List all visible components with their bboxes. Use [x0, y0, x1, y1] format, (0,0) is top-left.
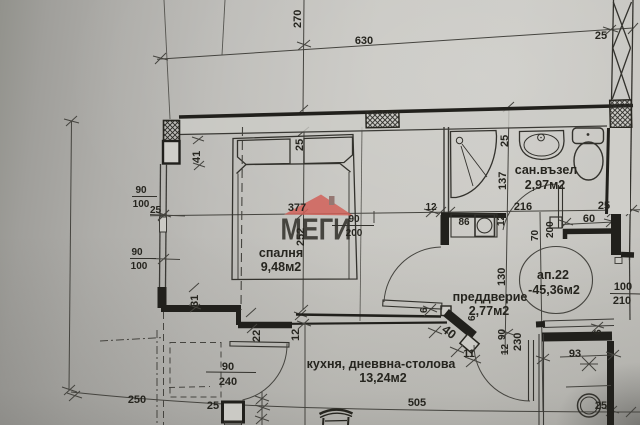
svg-text:ап.22: ап.22 [537, 268, 569, 282]
svg-text:кухня, дневвна-столова: кухня, дневвна-столова [307, 357, 457, 371]
svg-text:6: 6 [593, 329, 604, 335]
svg-text:2,97м2: 2,97м2 [525, 178, 566, 192]
svg-text:25: 25 [595, 400, 607, 412]
svg-text:25: 25 [598, 200, 610, 212]
svg-text:90: 90 [131, 247, 143, 258]
svg-text:25: 25 [294, 139, 306, 151]
svg-text:90: 90 [497, 328, 508, 340]
svg-text:240: 240 [219, 376, 237, 388]
svg-text:100: 100 [614, 281, 632, 293]
svg-text:505: 505 [408, 397, 426, 409]
svg-text:25: 25 [207, 400, 219, 412]
svg-text:МЕГИ: МЕГИ [281, 212, 352, 247]
svg-text:25: 25 [595, 30, 607, 42]
svg-text:377: 377 [288, 202, 306, 214]
svg-text:230: 230 [512, 333, 524, 351]
svg-text:22: 22 [251, 330, 263, 342]
svg-text:90: 90 [222, 361, 234, 373]
svg-text:-45,36м2: -45,36м2 [528, 283, 580, 297]
svg-text:12: 12 [290, 329, 302, 341]
svg-text:13,24м2: 13,24м2 [359, 371, 407, 385]
svg-text:130: 130 [496, 268, 508, 286]
svg-text:70: 70 [530, 229, 541, 241]
svg-text:12: 12 [500, 343, 511, 355]
svg-text:6: 6 [467, 315, 478, 321]
svg-text:100: 100 [133, 199, 150, 210]
svg-text:630: 630 [355, 35, 373, 47]
svg-text:спалня: спалня [259, 246, 303, 260]
svg-text:93: 93 [569, 348, 581, 360]
svg-text:6: 6 [419, 307, 430, 313]
svg-text:11: 11 [463, 348, 475, 360]
svg-text:12: 12 [425, 202, 437, 213]
svg-text:31: 31 [189, 295, 201, 307]
svg-text:270: 270 [292, 10, 304, 28]
svg-text:90: 90 [348, 214, 360, 225]
svg-text:137: 137 [497, 172, 509, 190]
svg-text:41: 41 [191, 151, 203, 163]
svg-text:25: 25 [150, 205, 162, 216]
svg-text:252: 252 [295, 228, 307, 246]
svg-text:25: 25 [499, 135, 511, 147]
svg-text:преддверие: преддверие [453, 290, 528, 304]
svg-text:86: 86 [458, 217, 470, 228]
svg-text:200: 200 [346, 228, 363, 239]
svg-text:216: 216 [514, 201, 532, 213]
svg-text:200: 200 [545, 221, 556, 238]
svg-text:9,48м2: 9,48м2 [261, 260, 302, 274]
svg-text:100: 100 [131, 261, 148, 272]
svg-text:210: 210 [613, 295, 631, 307]
svg-text:60: 60 [583, 213, 595, 225]
svg-text:сан.възел: сан.възел [515, 163, 578, 177]
svg-text:90: 90 [135, 185, 147, 196]
svg-text:12: 12 [496, 214, 507, 226]
svg-text:250: 250 [128, 394, 146, 406]
